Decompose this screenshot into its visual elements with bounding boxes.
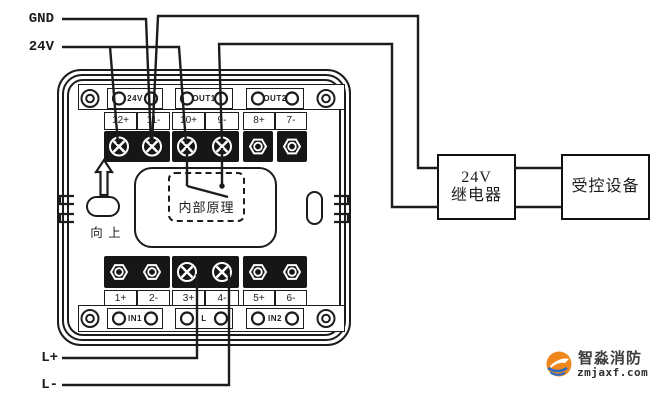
terminal-block-5-6 (243, 256, 307, 288)
terminal-block-3-4 (172, 256, 239, 288)
relay-box-line1: 24V (461, 169, 492, 187)
internal-circuit-box: 内部原理 (168, 172, 245, 222)
logo-brand-text: 智淼消防 (578, 351, 642, 366)
relay-box-line2: 继电器 (451, 187, 502, 205)
internal-circuit-label: 内部原理 (178, 197, 234, 216)
bottom-strip-label-in1: IN1 (128, 315, 142, 323)
terminal-label-12p: 12+ (104, 112, 137, 130)
terminal-label-7m: 7- (275, 112, 307, 130)
terminal-block-10-9 (172, 131, 239, 162)
terminal-label-11m: 11- (137, 112, 170, 130)
l-plus-label: L+ (32, 351, 58, 365)
terminal-block-8 (243, 131, 273, 162)
bottom-strip-label-l: L (201, 315, 206, 323)
terminal-block-1-2 (104, 256, 170, 288)
terminal-label-8p: 8+ (243, 112, 275, 130)
terminal-label-9m: 9- (205, 112, 239, 130)
terminal-block-12-11 (104, 131, 170, 162)
wiring-diagram: 24V OUT1 OUT2 12+ 11- 10+ 9- 8+ 7- 内部原理 … (0, 0, 670, 406)
bottom-strip-box-l: L (175, 308, 233, 329)
top-strip-label-24v: 24V (127, 95, 143, 103)
relay-box: 24V 继电器 (437, 154, 516, 220)
right-keyhole-slot (306, 191, 323, 225)
terminal-label-10p: 10+ (172, 112, 205, 130)
l-minus-label: L- (32, 378, 58, 392)
top-strip-box-out2: OUT2 (246, 88, 304, 109)
controlled-device-label: 受控设备 (571, 178, 639, 196)
logo-domain-text: zmjaxf.com (577, 367, 648, 378)
top-strip-label-out1: OUT1 (192, 95, 215, 103)
bottom-strip-box-in2: IN2 (246, 308, 304, 329)
orientation-label: 向 上 (85, 222, 127, 241)
terminal-block-7 (277, 131, 307, 162)
gnd-label: GND (28, 12, 54, 26)
top-strip-label-out2: OUT2 (263, 95, 286, 103)
24v-label: 24V (28, 40, 54, 54)
top-strip-box-out1: OUT1 (175, 88, 233, 109)
logo-icon (546, 351, 572, 377)
bottom-strip-box-in1: IN1 (107, 308, 163, 329)
bottom-strip-label-in2: IN2 (268, 315, 282, 323)
logo (546, 351, 572, 377)
left-keyhole-slot (86, 196, 120, 217)
controlled-device-box: 受控设备 (561, 154, 650, 220)
top-strip-box-24v: 24V (107, 88, 163, 109)
